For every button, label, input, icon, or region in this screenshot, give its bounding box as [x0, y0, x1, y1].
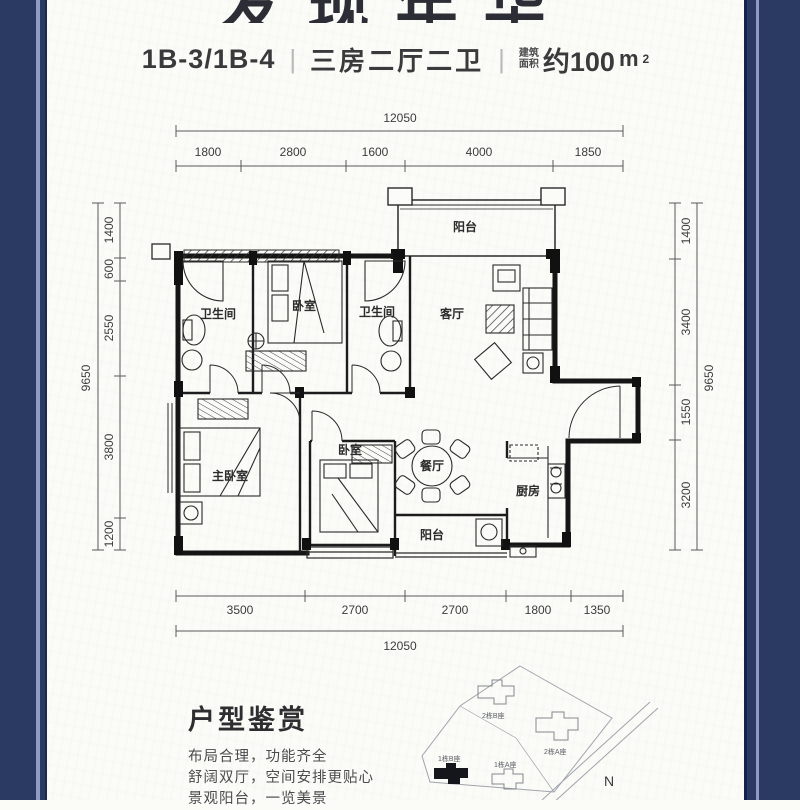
siteplan-svg: 2栋B座 2栋A座 1栋B座 1栋A座 N — [420, 660, 670, 800]
svg-text:1400: 1400 — [102, 216, 116, 243]
separator: | — [289, 44, 296, 75]
label-master: 主卧室 — [212, 468, 248, 483]
floorplan: 12050 1800 2800 1600 4000 1850 3500 2700… — [80, 98, 725, 671]
area-value: 约100 — [543, 40, 615, 79]
building-2b-outline — [478, 680, 514, 704]
area-unit: m — [619, 46, 639, 72]
label-bedroom-mid: 卧室 — [338, 442, 362, 457]
svg-text:2800: 2800 — [280, 145, 307, 159]
left-navy-border — [0, 0, 47, 800]
svg-text:3200: 3200 — [679, 481, 693, 508]
separator: | — [498, 44, 505, 75]
svg-text:3500: 3500 — [227, 603, 254, 617]
svg-text:1600: 1600 — [362, 145, 389, 159]
svg-text:600: 600 — [102, 259, 116, 279]
svg-text:1350: 1350 — [584, 603, 611, 617]
master-bay-window — [168, 403, 172, 493]
unit-subtitle-row: 1B-3/1B-4 | 三房二厅二卫 | 建筑 面积 约100 m 2 — [47, 38, 744, 80]
dim-top-labels: 12050 1800 2800 1600 4000 1850 — [195, 111, 602, 159]
building-1b-filled — [434, 763, 468, 784]
window-hatch-top — [184, 250, 339, 262]
appreciation-line: 布局合理，功能齐全 — [188, 747, 374, 768]
label-dining: 餐厅 — [420, 458, 444, 473]
dim-total-top: 12050 — [383, 111, 417, 125]
dim-top — [176, 125, 623, 172]
svg-text:1800: 1800 — [525, 603, 552, 617]
svg-text:1850: 1850 — [575, 145, 602, 159]
area-info: 建筑 面积 约100 m 2 — [519, 40, 649, 79]
washer — [476, 519, 502, 546]
label-bedroom-top: 卧室 — [292, 298, 316, 313]
bay-window — [307, 547, 393, 558]
compass-n: N — [604, 773, 614, 789]
cropped-poster-title: 发现年华 — [47, 0, 744, 23]
appreciation-block: 户型鉴赏 布局合理，功能齐全 舒阔双厅，空间安排更贴心 景观阳台，一览美景 — [188, 698, 374, 810]
label-2b: 2栋B座 — [482, 711, 505, 720]
room-labels: 阳台 卫生间 卧室 卫生间 客厅 主卧室 卧室 餐厅 厨房 阳台 — [200, 219, 540, 542]
label-1a: 1栋A座 — [494, 760, 517, 769]
svg-text:4000: 4000 — [466, 145, 493, 159]
dim-total-left: 9650 — [80, 364, 93, 391]
label-kitchen: 厨房 — [516, 483, 540, 498]
svg-text:3800: 3800 — [102, 433, 116, 460]
appreciation-line: 舒阔双厅，空间安排更贴心 — [188, 768, 374, 789]
building-2a-outline — [536, 712, 578, 740]
svg-text:1400: 1400 — [679, 217, 693, 244]
fridge — [510, 445, 538, 461]
label-balcony-top: 阳台 — [453, 219, 477, 234]
bedroom-mid-furniture — [320, 445, 392, 532]
area-superscript: 2 — [643, 52, 650, 66]
bed — [180, 428, 260, 496]
corner-decor — [152, 244, 170, 259]
master-furniture — [180, 399, 260, 524]
siteplan-labels: 2栋B座 2栋A座 1栋B座 1栋A座 — [438, 711, 567, 769]
armchair — [475, 343, 512, 380]
basin — [381, 351, 401, 371]
dim-total-right: 9650 — [702, 364, 716, 391]
shower — [183, 261, 223, 301]
poster-title-text: 发现年华 — [219, 0, 571, 23]
living-furniture — [475, 265, 552, 379]
svg-text:2550: 2550 — [102, 314, 116, 341]
siteplan: 2栋B座 2栋A座 1栋B座 1栋A座 N — [420, 660, 670, 805]
floorplan-svg: 12050 1800 2800 1600 4000 1850 3500 2700… — [80, 98, 725, 666]
svg-text:3400: 3400 — [679, 308, 693, 335]
svg-text:1550: 1550 — [679, 398, 693, 425]
svg-text:2700: 2700 — [442, 603, 469, 617]
right-navy-border — [744, 0, 800, 800]
dim-left — [92, 203, 126, 550]
svg-text:2700: 2700 — [342, 603, 369, 617]
label-2a: 2栋A座 — [544, 747, 567, 756]
balcony-bottom-rail — [395, 553, 507, 557]
svg-text:1800: 1800 — [195, 145, 222, 159]
unit-code: 1B-3/1B-4 — [142, 44, 276, 75]
bedroom-top-furniture — [246, 261, 342, 371]
wardrobe — [246, 351, 306, 371]
label-bath-right: 卫生间 — [359, 304, 395, 319]
layout-description: 三房二厅二卫 — [310, 41, 484, 78]
dim-total-bottom: 12050 — [383, 639, 417, 653]
basin — [182, 350, 202, 370]
tv-rug — [486, 305, 514, 333]
label-bath-left: 卫生间 — [200, 306, 236, 321]
wardrobe — [198, 399, 248, 419]
area-label: 建筑 面积 — [519, 48, 539, 70]
label-balcony-bottom: 阳台 — [420, 527, 444, 542]
svg-text:1200: 1200 — [102, 520, 116, 547]
appreciation-heading: 户型鉴赏 — [188, 698, 374, 737]
bed — [320, 460, 378, 532]
label-living: 客厅 — [439, 306, 464, 321]
dim-bottom-labels: 3500 2700 2700 1800 1350 12050 — [227, 603, 611, 653]
building-1a-outline — [492, 769, 523, 789]
label-1b: 1栋B座 — [438, 754, 461, 763]
